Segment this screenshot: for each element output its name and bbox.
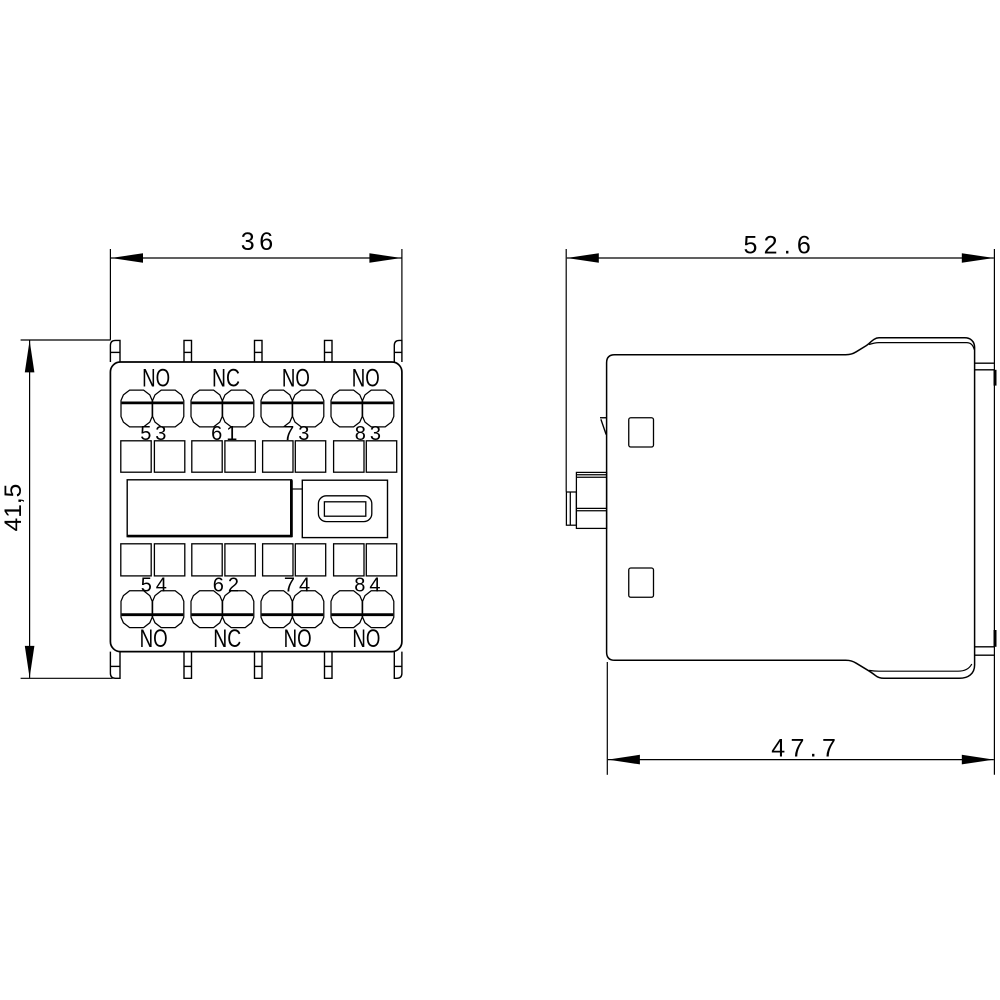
svg-text:52.6: 52.6 — [744, 231, 817, 259]
svg-text:73: 73 — [283, 423, 313, 445]
svg-text:54: 54 — [141, 575, 171, 597]
svg-text:NO: NO — [352, 364, 380, 392]
svg-text:36: 36 — [241, 228, 278, 256]
svg-text:NO: NO — [282, 364, 310, 392]
svg-text:NC: NC — [212, 364, 240, 392]
svg-text:NO: NO — [140, 625, 168, 653]
svg-text:83: 83 — [355, 423, 385, 445]
svg-text:47.7: 47.7 — [771, 735, 841, 763]
svg-text:84: 84 — [354, 575, 384, 597]
svg-text:NC: NC — [213, 625, 241, 653]
svg-text:NO: NO — [142, 364, 170, 392]
svg-text:61: 61 — [211, 423, 241, 445]
svg-text:53: 53 — [140, 423, 170, 445]
svg-text:74: 74 — [284, 575, 314, 597]
svg-text:NO: NO — [352, 625, 380, 653]
svg-text:NO: NO — [284, 625, 312, 653]
svg-text:41,5: 41,5 — [0, 484, 27, 532]
